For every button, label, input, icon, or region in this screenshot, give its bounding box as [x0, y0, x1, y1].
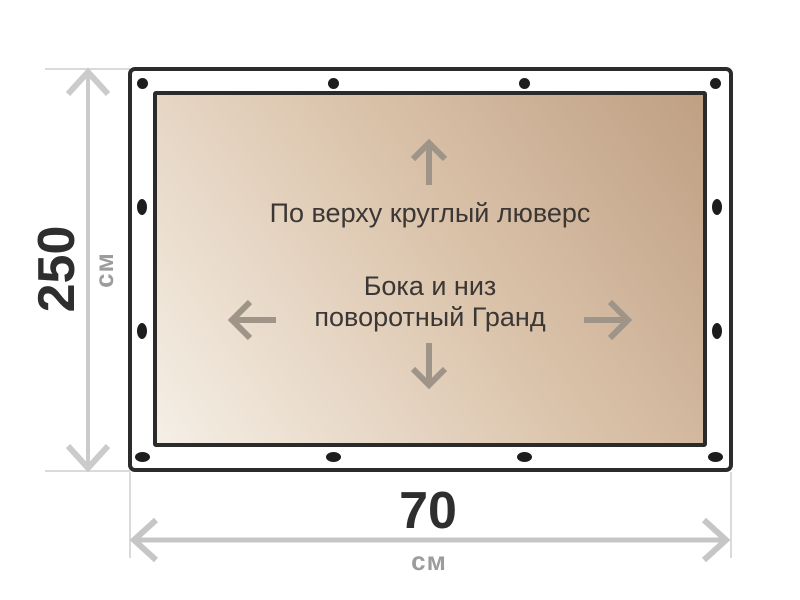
width-unit-label: см: [389, 546, 469, 576]
grommet-top-3: [519, 78, 530, 89]
note-sides-bottom: Бока и низ поворотный Гранд: [220, 271, 640, 333]
fastener-right-1: [712, 199, 722, 215]
arrow-down-icon: [407, 341, 451, 393]
width-value-label: 70: [368, 483, 488, 539]
note-sides-line2: поворотный Гранд: [220, 302, 640, 333]
note-sides-line1: Бока и низ: [220, 271, 640, 302]
fastener-bottom-3: [517, 452, 532, 462]
grommet-top-2: [328, 78, 339, 89]
grommet-top-4: [710, 78, 721, 89]
fastener-right-2: [712, 323, 722, 339]
fastener-bottom-1: [135, 452, 150, 462]
height-value-label: 250: [27, 189, 87, 349]
arrow-up-icon: [407, 135, 451, 187]
banner-dimension-diagram: 250 см 70 см По верху круглый люверс Бок…: [0, 0, 800, 600]
fastener-left-1: [137, 199, 147, 215]
fastener-left-2: [137, 323, 147, 339]
note-top-grommet: По верху круглый люверс: [220, 197, 640, 229]
fastener-bottom-2: [326, 452, 341, 462]
fastener-bottom-4: [708, 452, 723, 462]
height-unit-label: см: [89, 240, 119, 300]
grommet-top-1: [137, 78, 148, 89]
